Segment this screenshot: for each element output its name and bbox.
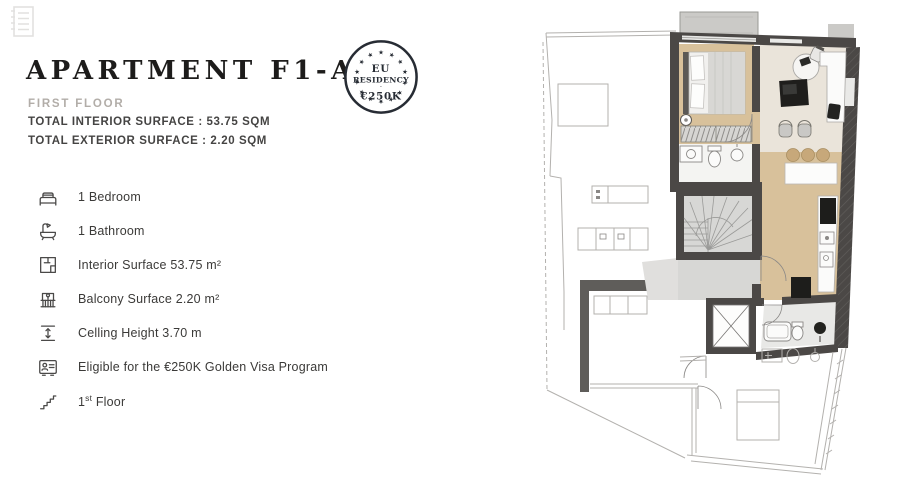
feature-balcony-surface: Balcony Surface 2.20 m²	[36, 288, 328, 310]
wardrobe	[681, 126, 751, 142]
height-icon	[36, 321, 60, 345]
feature-bedroom: 1 Bedroom	[36, 186, 328, 208]
feature-list: 1 Bedroom 1 Bathroom Interior Surface 53…	[36, 186, 328, 424]
feature-label: 1 Bedroom	[78, 190, 141, 204]
eu-residency-badge: ★ ★ ★ ★ ★ ★ ★ ★ ★ ★ ★ ★ ★ ★ EU RESIDENCY…	[342, 38, 420, 121]
feature-label: 1st Floor	[78, 393, 125, 409]
interior-surface-line: TOTAL INTERIOR SURFACE : 53.75 SQM	[28, 116, 270, 128]
bedside-lamp	[681, 115, 692, 126]
stairs-icon	[36, 389, 60, 413]
idcard-icon	[36, 355, 60, 379]
adjacent-unit-left	[543, 31, 676, 392]
corner-notepad-icon	[8, 4, 38, 45]
feature-label: Celling Height 3.70 m	[78, 326, 202, 340]
landing-floor	[678, 258, 760, 300]
balcony-icon	[36, 287, 60, 311]
badge-line1: EU	[372, 63, 391, 75]
badge-line3: €250K	[359, 90, 402, 102]
floor-plan	[530, 0, 900, 492]
feature-interior-surface: Interior Surface 53.75 m²	[36, 254, 328, 276]
svg-text:★: ★	[378, 49, 384, 57]
exterior-surface-line: TOTAL EXTERIOR SURFACE : 2.20 SQM	[28, 135, 267, 147]
feature-label: Balcony Surface 2.20 m²	[78, 292, 219, 306]
feature-bathroom: 1 Bathroom	[36, 220, 328, 242]
feature-floor-number: 1st Floor	[36, 390, 328, 412]
exterior-ledge	[828, 24, 854, 38]
feature-golden-visa: Eligible for the €250K Golden Visa Progr…	[36, 356, 328, 378]
feature-ceiling-height: Celling Height 3.70 m	[36, 322, 328, 344]
landing-wedge	[642, 258, 678, 300]
adjacent-unit-bottom	[547, 348, 846, 474]
elevator	[706, 298, 756, 354]
feature-label: Interior Surface 53.75 m²	[78, 258, 221, 272]
page-title: APARTMENT F1-A2	[26, 56, 378, 86]
floor-label: FIRST FLOOR	[28, 98, 124, 110]
feature-label: 1 Bathroom	[78, 224, 145, 238]
bathtub-icon	[36, 219, 60, 243]
bed-icon	[36, 185, 60, 209]
bed	[683, 52, 745, 114]
feature-label: Eligible for the €250K Golden Visa Progr…	[78, 360, 328, 374]
floorplan-icon	[36, 253, 60, 277]
staircase	[676, 188, 762, 260]
